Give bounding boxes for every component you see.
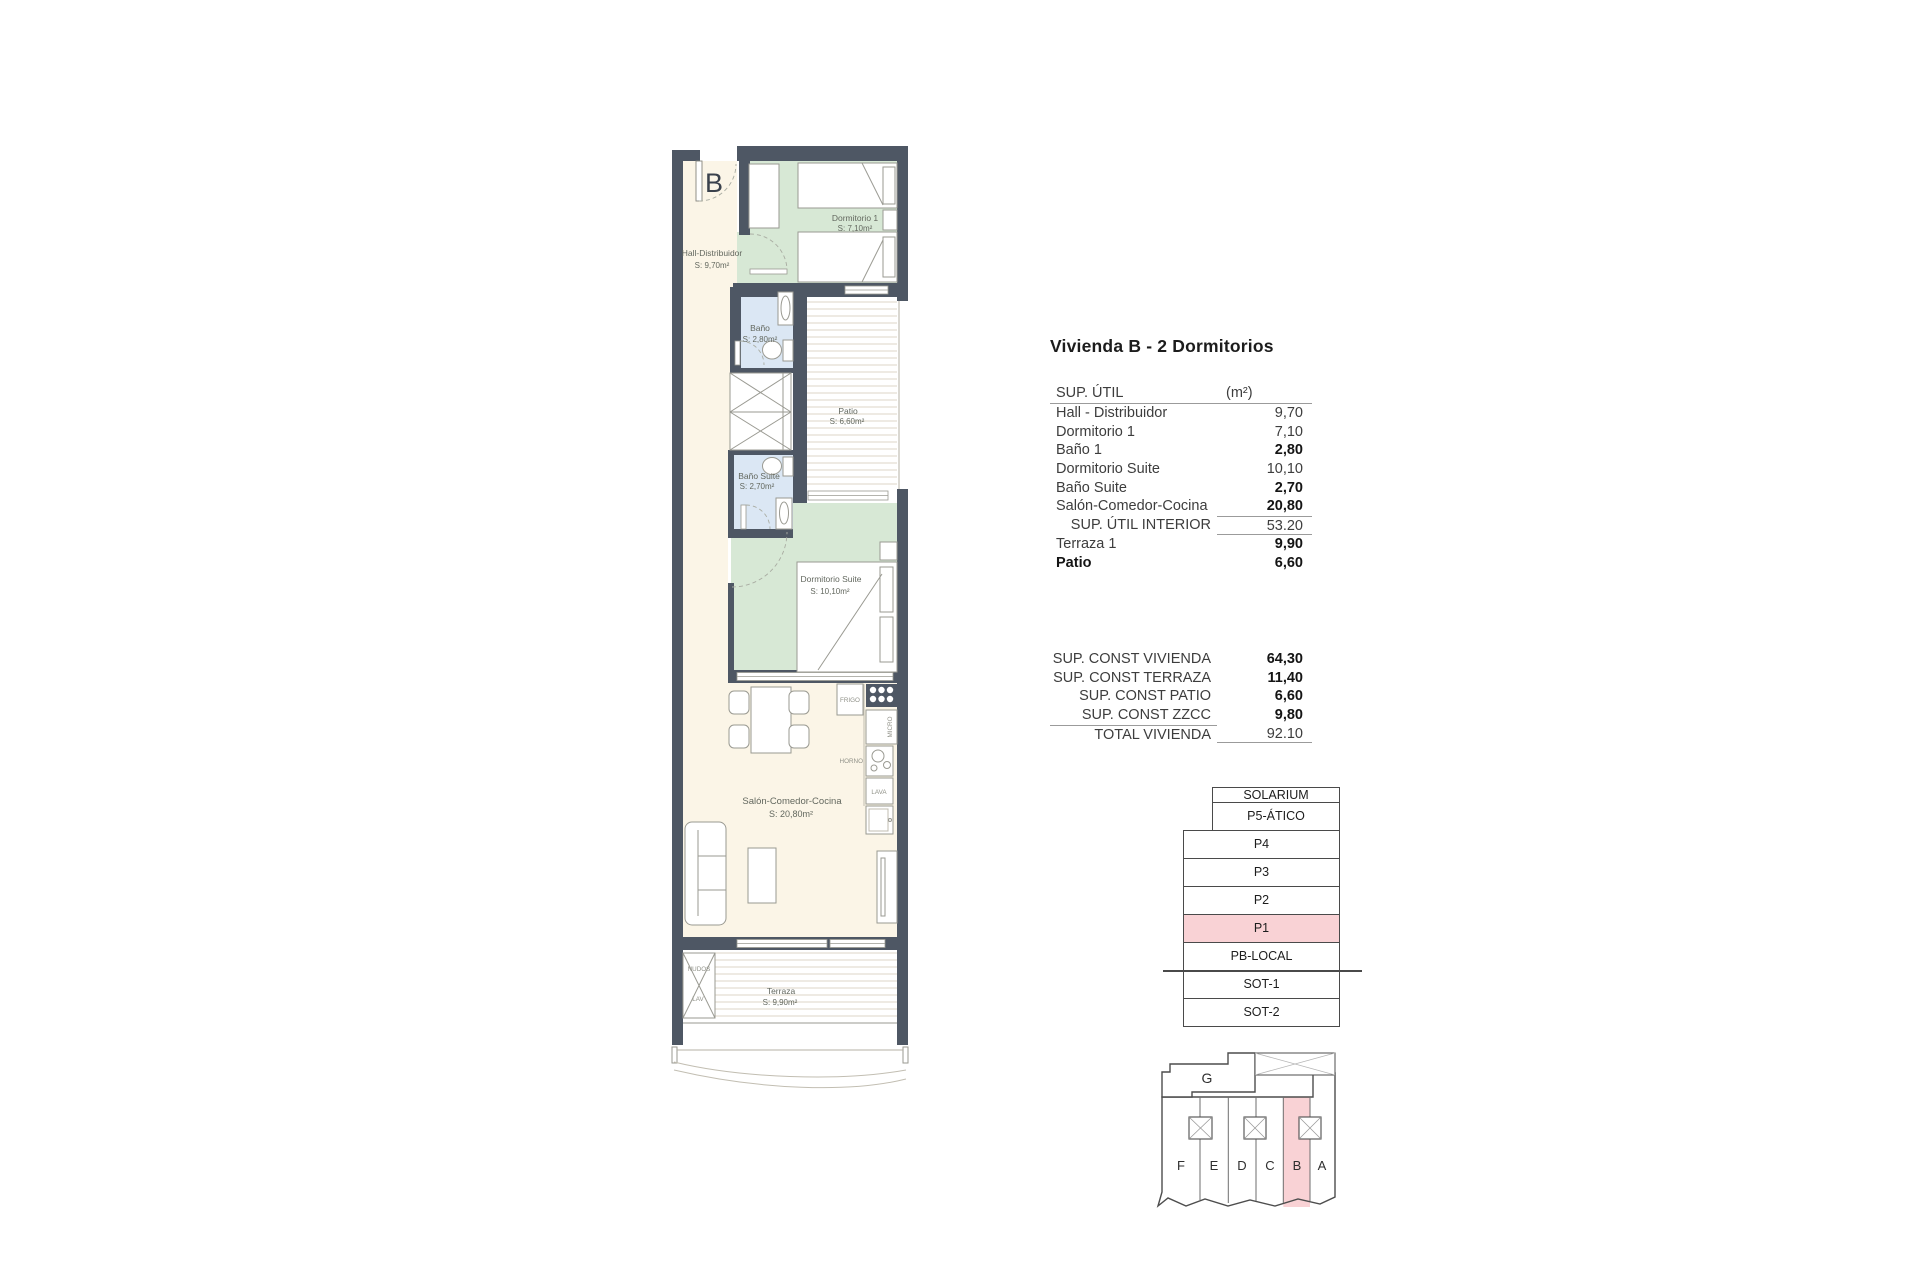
- pillow: [883, 167, 895, 204]
- wall-bano-patio: [793, 287, 807, 503]
- row-value: 9,90: [1217, 535, 1312, 554]
- wall-wardrobe-bottom: [730, 450, 793, 455]
- table-row: SUP. CONST TERRAZA 11,40: [1050, 669, 1312, 688]
- pillow: [883, 237, 895, 277]
- row-label: Patio: [1050, 554, 1217, 573]
- oven-label: HORNO: [840, 758, 864, 765]
- keyplan-label-e: E: [1210, 1158, 1219, 1173]
- room-area-salon: S: 20,80m²: [769, 809, 813, 819]
- suite-furniture: [797, 542, 897, 672]
- wall-right-lower: [897, 489, 908, 1045]
- row-value: 6,60: [1217, 554, 1312, 573]
- wall-right-upper: [897, 146, 908, 301]
- table-row: Dormitorio 1 7,10: [1050, 423, 1312, 442]
- table-row: Terraza 1 9,90: [1050, 535, 1312, 554]
- room-label-salon: Salón-Comedor-Cocina: [742, 796, 842, 807]
- floor-p2: P2: [1183, 886, 1340, 915]
- row-value: 9,70: [1217, 404, 1312, 423]
- table-header: SUP. ÚTIL (m²): [1050, 385, 1312, 404]
- floor-solarium: SOLARIUM: [1212, 787, 1340, 803]
- room-area-bano-suite: S: 2,70m²: [740, 482, 775, 491]
- constructed-area-table: SUP. CONST VIVIENDA 64,30 SUP. CONST TER…: [1050, 650, 1312, 743]
- subtotal-label: SUP. ÚTIL INTERIOR: [1050, 516, 1217, 535]
- table-row: Baño Suite 2,70: [1050, 479, 1312, 498]
- bano-door-leaf: [735, 341, 740, 365]
- nightstand: [880, 542, 897, 560]
- wall-corridor-suite: [728, 583, 734, 683]
- hob-burner: [878, 687, 884, 693]
- wall-left: [672, 150, 683, 1045]
- pillow: [880, 617, 893, 662]
- keyplan-label-d: D: [1237, 1158, 1246, 1173]
- ground-line: [1163, 970, 1362, 972]
- table-row: Hall - Distribuidor 9,70: [1050, 404, 1312, 423]
- total-label: TOTAL VIVIENDA: [1050, 725, 1217, 744]
- keyplan-label-b: B: [1293, 1158, 1302, 1173]
- bano-suite-door-leaf: [741, 505, 746, 529]
- wall-bano-suite-bottom: [728, 529, 793, 538]
- bed-single-2: [798, 232, 897, 282]
- tv-unit: [877, 851, 897, 923]
- floor-sot-2: SOT-2: [1183, 998, 1340, 1027]
- header-sup-util: SUP. ÚTIL: [1050, 385, 1224, 401]
- room-label-patio: Patio: [838, 406, 858, 416]
- wall-top-left: [672, 150, 700, 161]
- hob-burner: [878, 696, 884, 702]
- pillow: [880, 567, 893, 612]
- floor-pb-local: PB-LOCAL: [1183, 942, 1340, 971]
- keyplan-unit-b-highlight: [1283, 1097, 1310, 1207]
- toilet-tank: [783, 457, 793, 476]
- room-label-bano: Baño: [750, 323, 770, 333]
- dishwasher-label: LAVA: [871, 789, 887, 796]
- boundary-curve: [674, 1070, 906, 1088]
- wall-terraza-pillar-left: [672, 1023, 683, 1045]
- row-value: 7,10: [1217, 423, 1312, 442]
- bed-single-1: [798, 163, 897, 208]
- row-label: Hall - Distribuidor: [1050, 404, 1217, 423]
- row-label: Salón-Comedor-Cocina: [1050, 497, 1217, 516]
- room-label-dormitorio1: Dormitorio 1: [832, 213, 879, 223]
- chair: [789, 691, 809, 714]
- table-row: SUP. CONST ZZCC 9,80: [1050, 706, 1312, 725]
- dorm1-door-leaf: [750, 269, 787, 274]
- hob-burner: [887, 687, 893, 693]
- tv-screen: [881, 858, 885, 916]
- wall-bano-suite-left: [728, 450, 734, 535]
- laundry-label-nudos: NUDOS: [688, 966, 711, 973]
- area-table: Vivienda B - 2 Dormitorios SUP. ÚTIL (m²…: [1050, 336, 1312, 572]
- wall-wardrobe-top: [730, 368, 793, 373]
- row-label: SUP. CONST PATIO: [1050, 687, 1217, 706]
- table-row: Salón-Comedor-Cocina 20,80: [1050, 497, 1312, 516]
- subtotal-value: 53.20: [1217, 516, 1312, 535]
- nightstand: [883, 210, 897, 230]
- table-row: Dormitorio Suite 10,10: [1050, 460, 1312, 479]
- row-label: Baño Suite: [1050, 479, 1217, 498]
- laundry-label-lav: LAV: [692, 996, 704, 1003]
- table-row: Baño 1 2,80: [1050, 441, 1312, 460]
- hall-wardrobes: [730, 373, 791, 450]
- floor-p5-atico: P5-ÁTICO: [1212, 802, 1340, 831]
- dining-table: [751, 687, 791, 753]
- room-label-hall: Hall-Distribuidor: [682, 248, 743, 258]
- row-label: Dormitorio Suite: [1050, 460, 1217, 479]
- hob-burner: [887, 696, 893, 702]
- header-unit: (m²): [1224, 385, 1312, 401]
- keyplan-label-c: C: [1265, 1158, 1274, 1173]
- boundary-curve: [674, 1062, 906, 1077]
- table-row: Patio 6,60: [1050, 554, 1312, 573]
- row-value: 6,60: [1217, 687, 1312, 706]
- chair: [789, 725, 809, 748]
- fridge-label: FRIGO: [840, 697, 860, 704]
- hob-burner: [870, 687, 876, 693]
- railing-post-right: [903, 1047, 908, 1063]
- sofa: [685, 822, 726, 925]
- unit-letter: B: [705, 168, 723, 198]
- row-label: SUP. CONST ZZCC: [1050, 706, 1217, 725]
- chair: [729, 691, 749, 714]
- page: { "colors": { "wall": "#4e5764", "room_c…: [0, 0, 1920, 1280]
- room-area-dormitorio-suite: S: 10,10m²: [810, 587, 849, 596]
- key-plan: G F E D C B A: [1140, 1040, 1360, 1225]
- row-label: SUP. CONST VIVIENDA: [1050, 650, 1217, 669]
- floor-p4: P4: [1183, 830, 1340, 859]
- chair: [729, 725, 749, 748]
- table-subtotal-row: SUP. ÚTIL INTERIOR 53.20: [1050, 516, 1312, 535]
- room-label-dormitorio-suite: Dormitorio Suite: [801, 574, 862, 584]
- floor-p1-highlighted: P1: [1183, 914, 1340, 943]
- floor-sot-1: SOT-1: [1183, 970, 1340, 999]
- room-area-dormitorio1: S: 7,10m²: [838, 224, 873, 233]
- room-patio: [807, 297, 897, 488]
- total-value: 92.10: [1217, 725, 1312, 744]
- row-value: 11,40: [1217, 669, 1312, 688]
- row-value: 20,80: [1217, 497, 1312, 516]
- row-value: 2,70: [1217, 479, 1312, 498]
- toilet-tank: [783, 340, 793, 361]
- floor-p3: P3: [1183, 858, 1340, 887]
- table-total-row: TOTAL VIVIENDA 92.10: [1050, 725, 1312, 744]
- wall-terraza-pillar-right: [897, 1023, 908, 1045]
- hob-burner: [870, 696, 876, 702]
- room-area-terraza: S: 9,90m²: [763, 998, 798, 1007]
- row-label: Terraza 1: [1050, 535, 1217, 554]
- stair-cores: [1189, 1117, 1321, 1139]
- row-value: 9,80: [1217, 706, 1312, 725]
- wall-top-right: [737, 146, 908, 161]
- keyplan-label-f: F: [1177, 1158, 1185, 1173]
- row-label: Baño 1: [1050, 441, 1217, 460]
- floor-plan: B Hall-Distribuidor S: 9,70m² Dormitorio…: [640, 130, 940, 1110]
- room-area-bano: S: 2,80m²: [743, 335, 778, 344]
- entrance-door-leaf: [696, 161, 702, 201]
- row-label: Dormitorio 1: [1050, 423, 1217, 442]
- keyplan-label-g: G: [1202, 1070, 1213, 1086]
- keyplan-label-a: A: [1318, 1158, 1327, 1173]
- room-area-hall: S: 9,70m²: [695, 261, 730, 270]
- row-value: 2,80: [1217, 441, 1312, 460]
- table-title: Vivienda B - 2 Dormitorios: [1050, 336, 1312, 357]
- room-area-patio: S: 6,60m²: [830, 417, 865, 426]
- wall-dorm1-left: [739, 161, 750, 235]
- wardrobe: [749, 164, 779, 228]
- table-row: SUP. CONST PATIO 6,60: [1050, 687, 1312, 706]
- coffee-table: [748, 848, 776, 903]
- microwave-label: MICRO: [887, 716, 894, 737]
- railing-post-left: [672, 1047, 677, 1063]
- room-hall-corridor: [683, 506, 728, 683]
- row-label: SUP. CONST TERRAZA: [1050, 669, 1217, 688]
- room-label-terraza: Terraza: [767, 986, 796, 996]
- room-label-bano-suite: Baño Suite: [738, 471, 780, 481]
- row-value: 64,30: [1217, 650, 1312, 669]
- row-value: 10,10: [1217, 460, 1312, 479]
- floor-stack: SOLARIUM P5-ÁTICO P4 P3 P2 P1 PB-LOCAL S…: [1183, 787, 1340, 1027]
- table-row: SUP. CONST VIVIENDA 64,30: [1050, 650, 1312, 669]
